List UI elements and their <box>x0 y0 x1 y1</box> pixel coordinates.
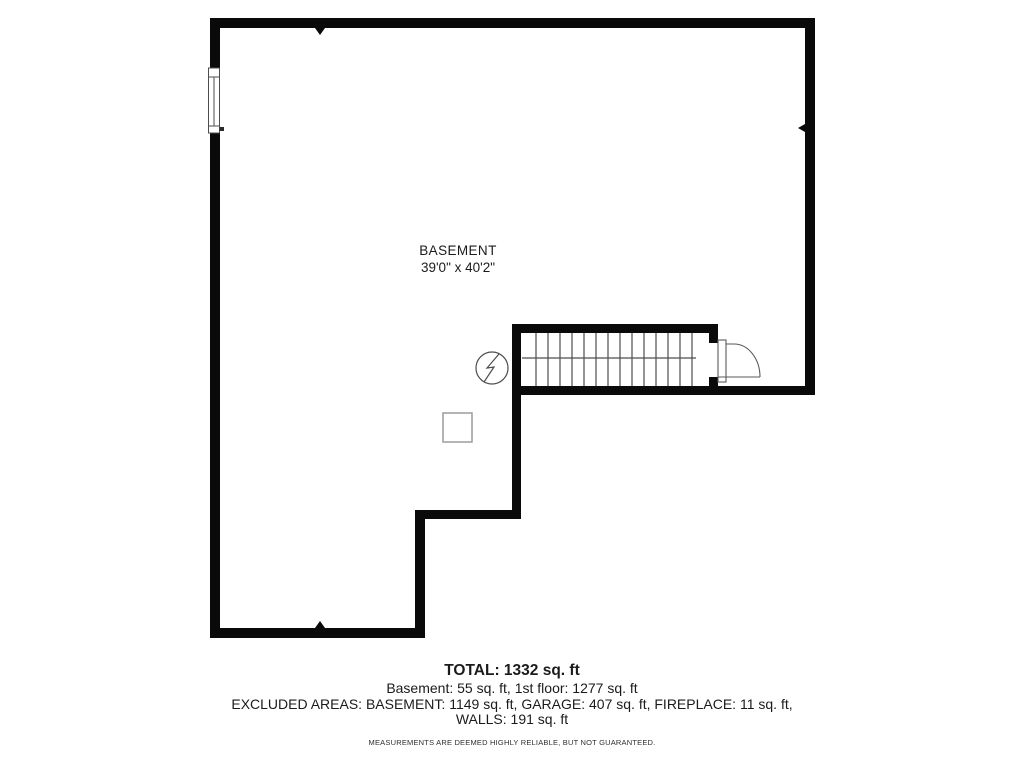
wall-corridor-bottom <box>512 386 815 395</box>
door-leaf <box>718 340 726 382</box>
wall-marker-bottom <box>315 621 325 628</box>
room-label: BASEMENT 39'0" x 40'2" <box>419 242 496 276</box>
area-summary: TOTAL: 1332 sq. ft Basement: 55 sq. ft, … <box>0 661 1024 747</box>
door-swing-icon <box>718 340 760 382</box>
wall-left-lower <box>210 133 220 638</box>
walls-area-line: WALLS: 191 sq. ft <box>0 712 1024 728</box>
total-area-line: TOTAL: 1332 sq. ft <box>0 661 1024 681</box>
wall-stairwell-top <box>512 324 718 333</box>
wall-bottom <box>210 628 425 638</box>
wall-marker-right <box>798 124 805 132</box>
floor-areas-line: Basement: 55 sq. ft, 1st floor: 1277 sq.… <box>0 681 1024 697</box>
wall-stairwell-right-upper <box>709 324 718 343</box>
electrical-panel-icon <box>476 352 508 384</box>
wall-right <box>805 18 815 395</box>
wall-left-upper <box>210 18 220 68</box>
excluded-areas-line: EXCLUDED AREAS: BASEMENT: 1149 sq. ft, G… <box>0 697 1024 713</box>
room-dimensions: 39'0" x 40'2" <box>419 259 496 276</box>
wall-step-vertical <box>415 510 425 638</box>
floor-plan-drawing <box>0 0 1024 768</box>
wall-top <box>210 18 815 28</box>
wall-step-horizontal <box>415 510 521 519</box>
room-name: BASEMENT <box>419 242 496 259</box>
wall-stairwell-left <box>512 324 521 519</box>
equipment-square <box>443 413 472 442</box>
disclaimer-text: MEASUREMENTS ARE DEEMED HIGHLY RELIABLE,… <box>0 738 1024 747</box>
window-icon <box>209 68 225 133</box>
wall-marker-top <box>315 28 325 35</box>
window-latch-tick <box>220 127 225 131</box>
staircase <box>522 333 696 386</box>
walls <box>210 18 815 638</box>
floor-plan-page: BASEMENT 39'0" x 40'2" TOTAL: 1332 sq. f… <box>0 0 1024 768</box>
